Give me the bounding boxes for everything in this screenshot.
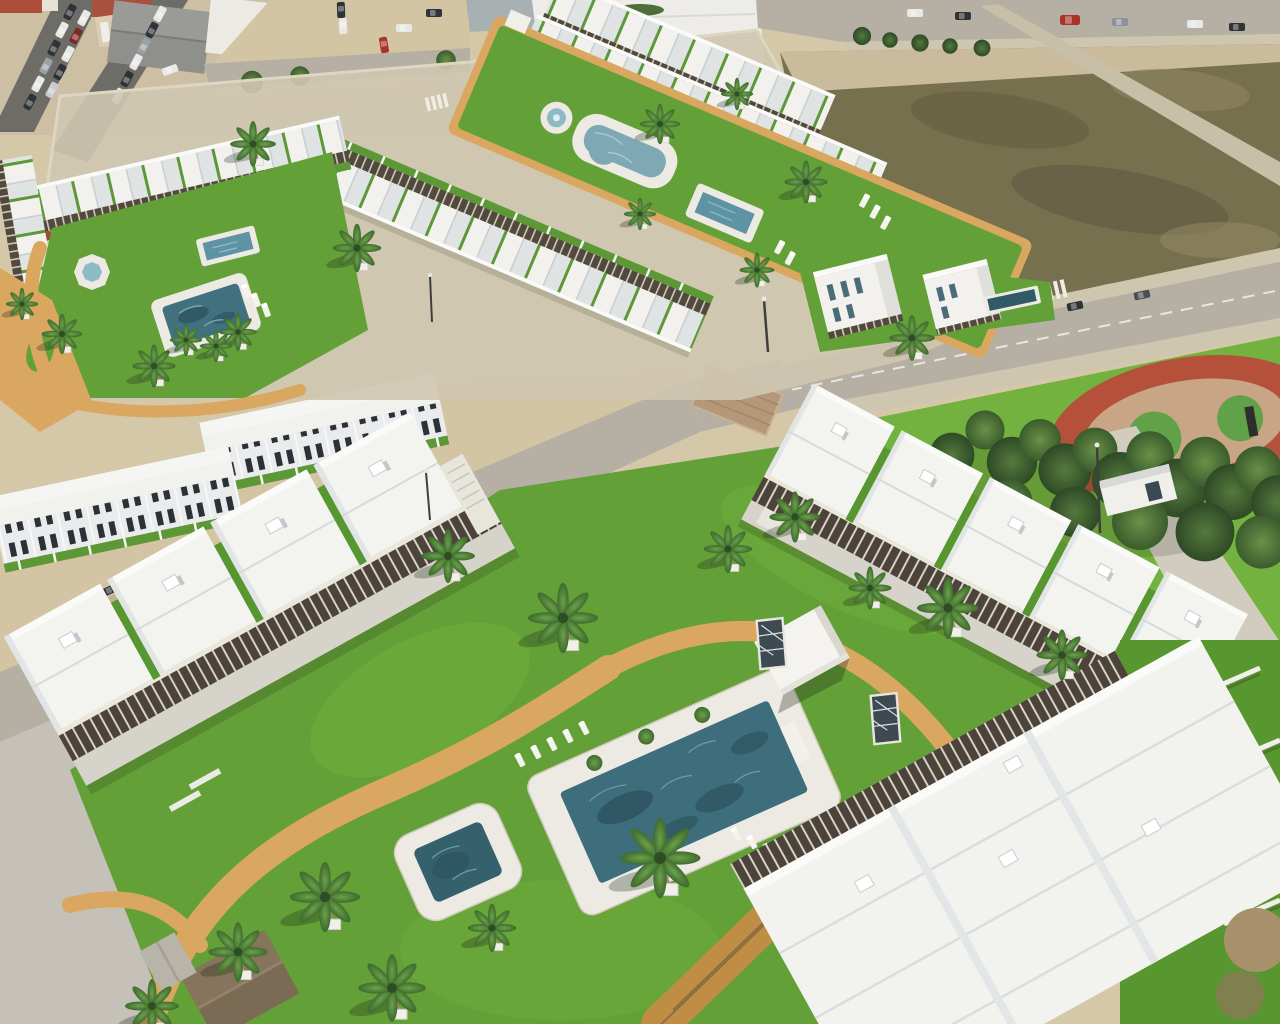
car [426, 9, 442, 17]
roadside-tree [882, 32, 897, 47]
red-van [1060, 15, 1080, 25]
dry-tree [1216, 971, 1264, 1019]
roadside-tree [911, 34, 928, 51]
roadside-tree [942, 38, 957, 53]
car [396, 24, 412, 32]
roadside-tree [853, 27, 871, 45]
aerial-render-image [0, 0, 1280, 1024]
octagonal-fountain [74, 254, 110, 290]
roadside-tree [974, 40, 991, 57]
